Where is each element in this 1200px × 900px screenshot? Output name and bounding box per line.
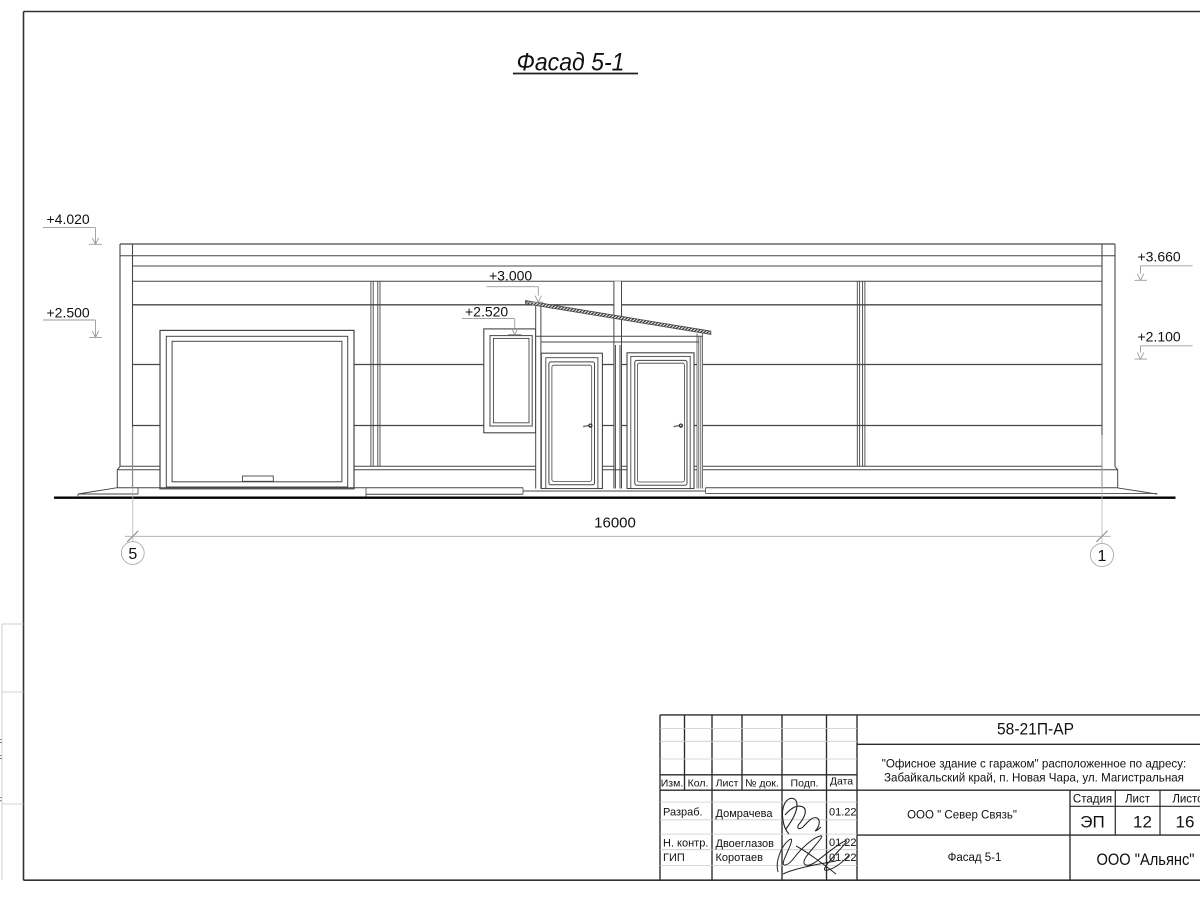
svg-text:Подп.: Подп.	[791, 778, 819, 790]
svg-text:16: 16	[1176, 813, 1195, 832]
svg-text:Забайкальский край, п. Новая Ч: Забайкальский край, п. Новая Чара, ул. М…	[884, 771, 1184, 784]
svg-text:+3.660: +3.660	[1138, 249, 1181, 265]
svg-text:Фасад 5-1: Фасад 5-1	[948, 852, 1002, 864]
svg-text:"Офисное здание с гаражом" рас: "Офисное здание с гаражом" расположенное…	[882, 757, 1187, 770]
svg-text:Двоеглазов: Двоеглазов	[716, 838, 775, 850]
svg-text:Н. контр.: Н. контр.	[663, 838, 708, 850]
svg-text:5: 5	[128, 546, 137, 563]
svg-text:Дата: Дата	[830, 776, 853, 788]
svg-text:ООО " Север Связь": ООО " Север Связь"	[907, 810, 1017, 822]
svg-text:Изм.: Изм.	[661, 778, 684, 790]
svg-text:Подп. и дата: Подп. и дата	[0, 728, 2, 767]
svg-text:Домрачева: Домрачева	[716, 808, 774, 820]
svg-text:Фасад 5-1: Фасад 5-1	[517, 49, 625, 77]
svg-text:01.22: 01.22	[829, 807, 857, 819]
svg-text:Инв. № подл.: Инв. № подл.	[0, 792, 2, 833]
svg-text:+3.000: +3.000	[489, 268, 532, 284]
svg-text:Кол.: Кол.	[688, 778, 709, 790]
svg-text:Разраб.: Разраб.	[663, 806, 703, 818]
svg-text:Листов: Листов	[1172, 794, 1200, 806]
svg-text:12: 12	[1133, 813, 1152, 832]
svg-text:Коротаев: Коротаев	[716, 852, 764, 864]
svg-text:+2.100: +2.100	[1138, 329, 1181, 345]
svg-text:ГИП: ГИП	[663, 852, 685, 864]
svg-text:Лист: Лист	[716, 778, 739, 790]
svg-text:Взам. инв. №: Взам. инв. №	[0, 640, 2, 680]
svg-text:№ док.: № док.	[745, 778, 779, 790]
svg-text:+2.500: +2.500	[47, 305, 90, 321]
svg-text:+2.520: +2.520	[465, 304, 508, 320]
svg-text:Стадия: Стадия	[1073, 794, 1112, 806]
svg-text:58-21П-АР: 58-21П-АР	[997, 721, 1074, 739]
svg-text:ЭП: ЭП	[1080, 813, 1104, 832]
svg-text:1: 1	[1098, 548, 1107, 565]
svg-text:ООО "Альянс": ООО "Альянс"	[1097, 851, 1195, 869]
svg-text:+4.020: +4.020	[47, 211, 90, 227]
svg-text:16000: 16000	[594, 515, 636, 532]
svg-text:Лист: Лист	[1125, 794, 1151, 806]
svg-text:01.22: 01.22	[829, 837, 857, 849]
